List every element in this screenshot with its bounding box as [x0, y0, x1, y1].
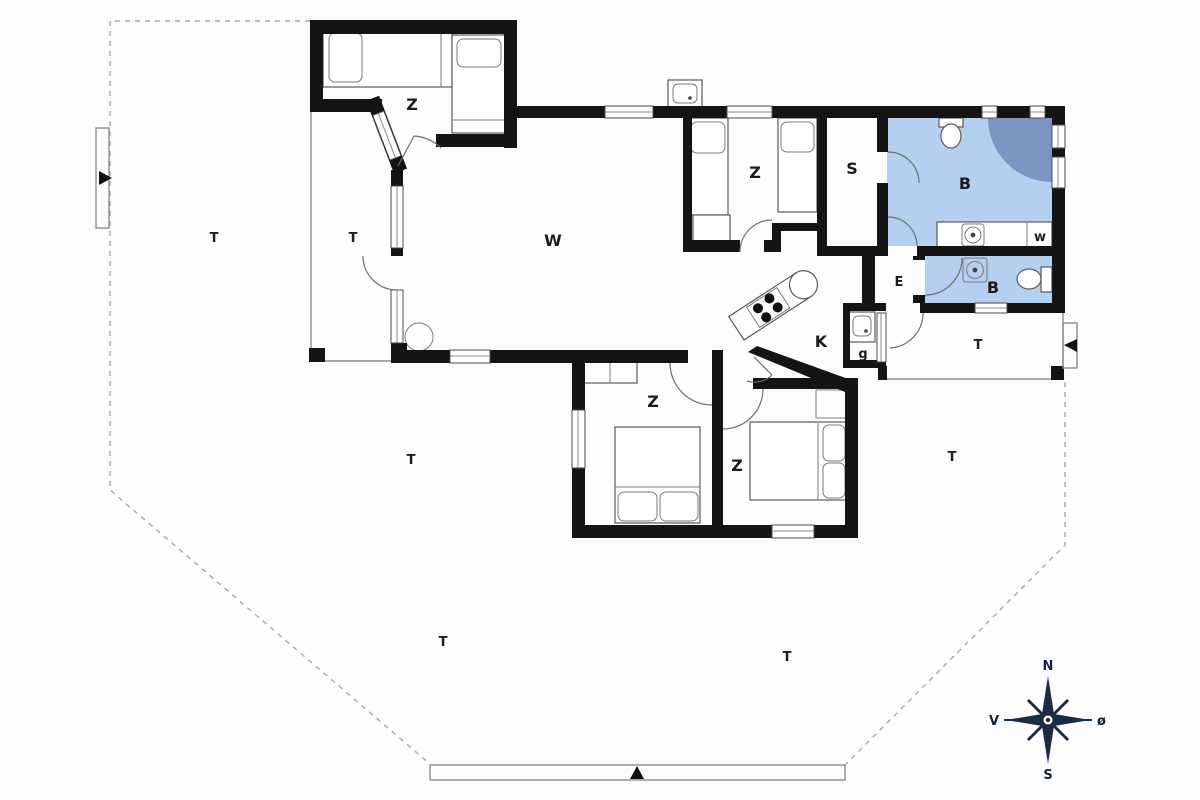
bed: [323, 28, 452, 87]
sink-drain-icon: [971, 233, 976, 238]
window: [391, 186, 403, 248]
nightstand: [693, 215, 730, 242]
compass-south-point: [1042, 726, 1054, 764]
room-label-living: W: [544, 231, 562, 250]
terrace-label: T: [783, 650, 792, 665]
door-arc: [398, 136, 441, 166]
window: [877, 313, 886, 362]
window: [391, 290, 403, 343]
floor-plan-canvas: Z W Z S B w B E K g Z Z T T T T T T T N …: [0, 0, 1200, 800]
window: [572, 410, 585, 468]
window: [772, 525, 814, 538]
compass-label-south: S: [1043, 768, 1052, 783]
compass-label-west: V: [989, 714, 999, 729]
entry-arrow-north-icon: [630, 766, 644, 779]
entry-arrow-west-icon: [1064, 339, 1077, 352]
room-label-bath-large: B: [959, 174, 971, 193]
west-entrance-marker: [96, 128, 112, 228]
room-label-bedroom2: Z: [749, 163, 761, 182]
south-walkway: [430, 765, 845, 780]
compass-label-east: ø: [1097, 714, 1106, 729]
utility-sink-icon: [849, 312, 875, 342]
compass-west-point: [1006, 714, 1042, 726]
window: [605, 106, 653, 118]
bedroom1-furniture: [323, 28, 505, 133]
terrace-label: T: [439, 635, 448, 650]
terrace-label: T: [349, 231, 358, 246]
bedroom4-furniture: [750, 390, 847, 500]
diagonal-window-wall: [366, 96, 407, 174]
terrace-post: [1051, 366, 1064, 380]
outdoor-sink-icon: [668, 80, 702, 107]
room-label-kitchen: K: [815, 332, 828, 351]
boundary-east-line: [845, 382, 1065, 765]
window: [982, 106, 997, 118]
door-arc: [670, 363, 712, 405]
bedroom3-furniture: [582, 360, 700, 523]
terrace-post: [878, 366, 887, 380]
window: [450, 350, 490, 363]
nightstand: [816, 390, 846, 418]
floor-plan-page: Z W Z S B w B E K g Z Z T T T T T T T N …: [0, 0, 1200, 800]
toilet-icon: [939, 118, 963, 148]
bed: [778, 118, 817, 212]
room-label-bath-small: B: [987, 278, 999, 297]
door-arc: [363, 256, 397, 290]
room-label-utility: g: [858, 347, 867, 362]
terrace-label: T: [974, 338, 983, 353]
compass-label-north: N: [1043, 659, 1054, 674]
compass-rose: N S V ø: [989, 659, 1106, 783]
terrace-label: T: [210, 231, 219, 246]
room-label-sauna: S: [846, 159, 858, 178]
terrace-label: T: [948, 450, 957, 465]
round-table-icon: [405, 323, 433, 351]
bed: [688, 118, 728, 215]
door-arc: [890, 313, 923, 348]
room-label-bedroom1: Z: [406, 95, 418, 114]
window: [1052, 157, 1065, 188]
room-label-bedroom4: Z: [731, 456, 743, 475]
bed: [452, 35, 505, 133]
window: [727, 106, 772, 118]
compass-north-point: [1042, 676, 1054, 714]
room-label-washer: w: [1034, 230, 1046, 245]
window: [1030, 106, 1045, 118]
terrace-label: T: [407, 453, 416, 468]
compass-east-point: [1054, 714, 1090, 726]
window: [975, 303, 1007, 313]
window: [1052, 125, 1065, 148]
room-label-hall: E: [895, 275, 904, 290]
kitchen-counter: [729, 265, 823, 340]
terrace-post: [309, 348, 325, 362]
room-label-bedroom3: Z: [647, 392, 659, 411]
